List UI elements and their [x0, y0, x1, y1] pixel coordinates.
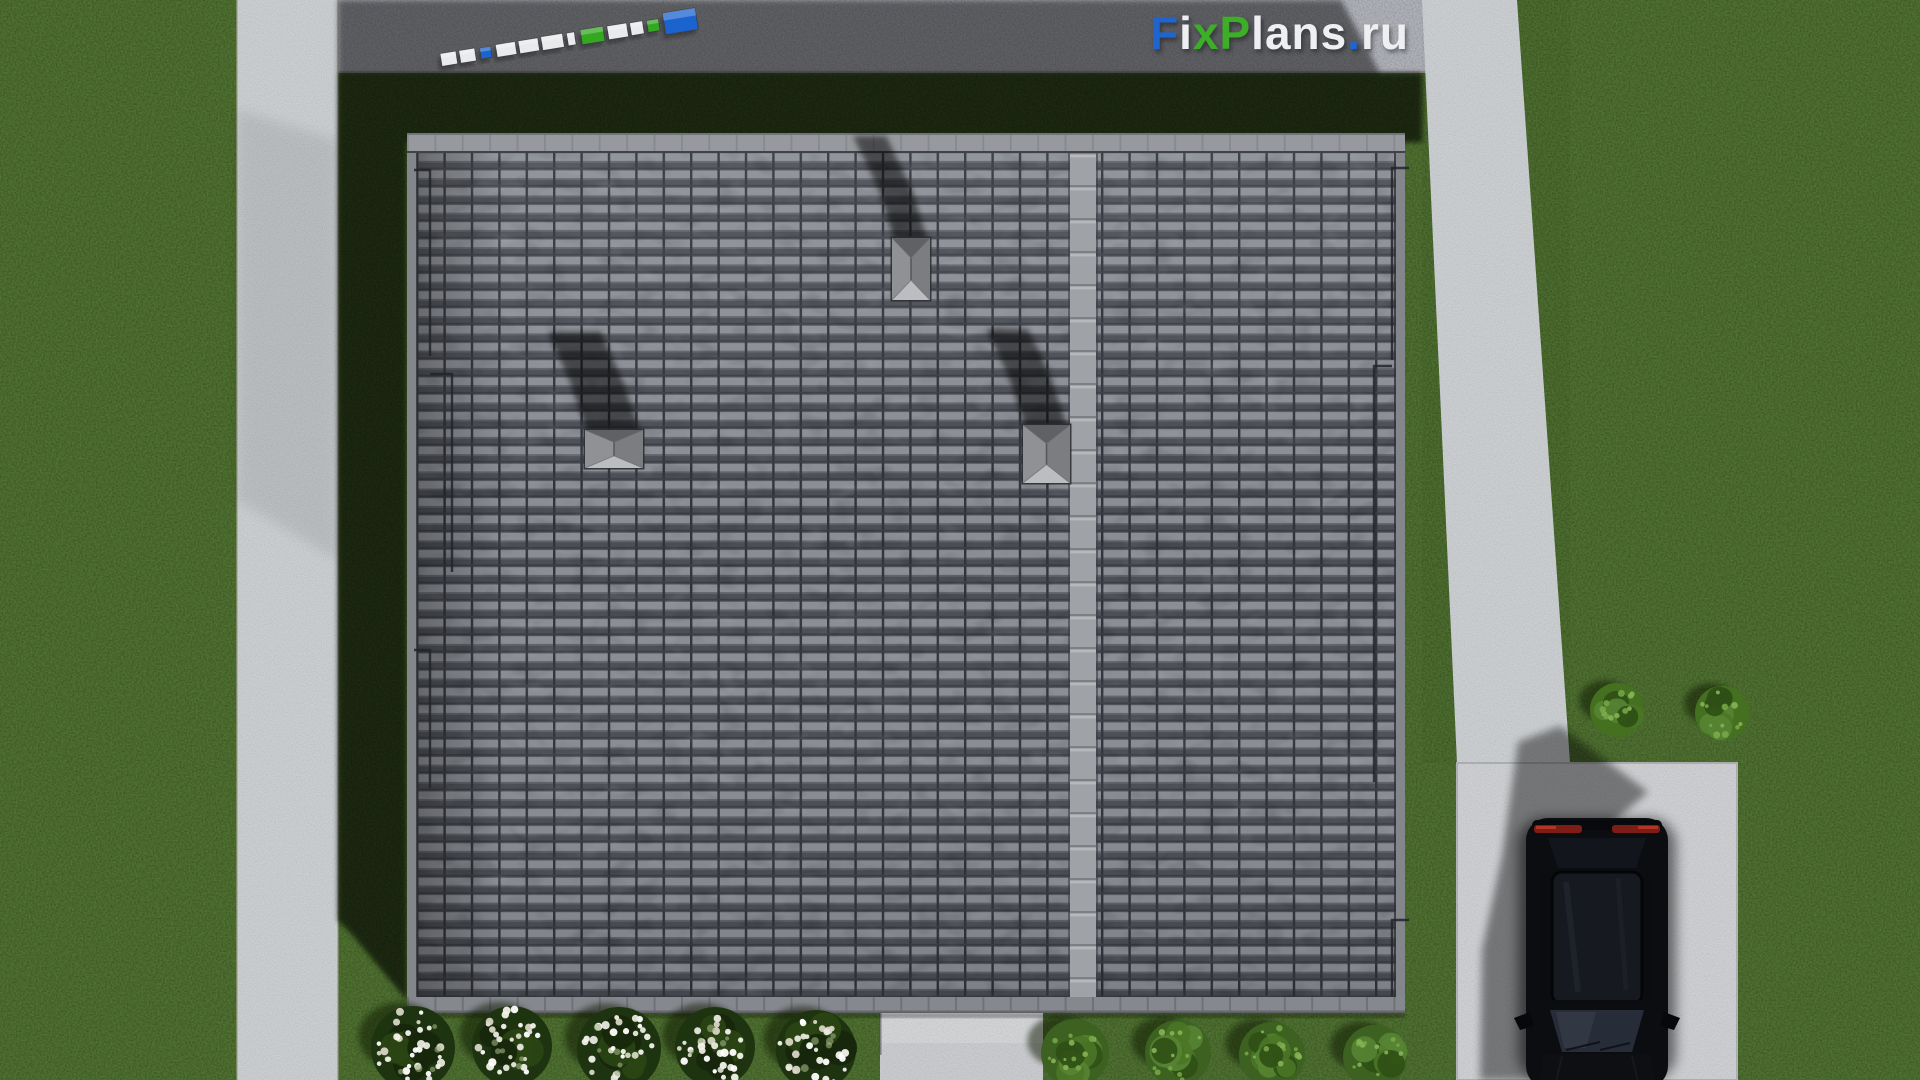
chimney-vent [1022, 424, 1072, 485]
chimney-vent [891, 237, 932, 302]
fixplans-watermark-logo: FixPlans.ru [1150, 6, 1409, 58]
hood [1538, 1054, 1656, 1080]
logo-segment: . [1347, 7, 1361, 59]
logo-segment: F [1150, 7, 1179, 59]
roof [407, 133, 1409, 1018]
roof-ridge [1070, 152, 1096, 997]
logo-segment: P [1219, 7, 1251, 59]
logo-segment: x [1193, 7, 1220, 59]
rear-window [1548, 838, 1646, 868]
render-scene: FixPlans.ru [0, 0, 1920, 1080]
left-path [236, 0, 339, 1080]
roof-left-trim [407, 152, 417, 997]
logo-segment: i [1179, 7, 1193, 59]
entry-walkway [879, 1013, 1043, 1080]
roof-gutter [407, 997, 1405, 1013]
chimney-vent [584, 429, 645, 470]
left-path-soft-shadow [237, 110, 338, 560]
roof-right-trim [1396, 152, 1405, 997]
render-canvas [0, 0, 1920, 1080]
roof-top-cap [407, 133, 1405, 153]
logo-segment: lans [1251, 7, 1347, 59]
logo-segment: ru [1361, 7, 1409, 59]
car [1514, 818, 1680, 1080]
